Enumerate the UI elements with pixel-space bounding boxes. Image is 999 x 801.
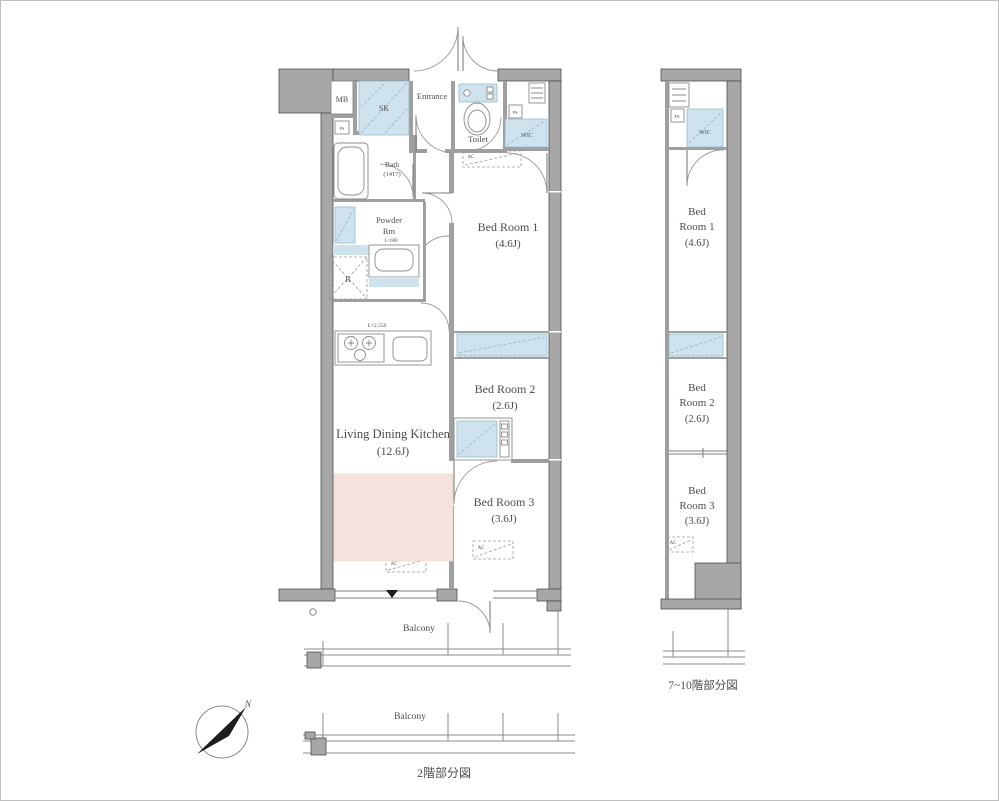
room-label-bed3-line1: Bed [688,485,706,497]
window-strip-bed2 [457,334,547,356]
room-label-ldk-size: (12.6J) [377,446,409,458]
room-label-ldk: Living Dining Kitchen [336,427,451,441]
entrance-door-icon [414,27,498,71]
ps-label: PS [674,114,680,119]
bottom-balcony-railing [303,713,575,755]
floor-plan-canvas: PS PS [0,0,999,801]
refrigerator-label: R [345,275,351,284]
bottom-plan-caption: 2階部分図 [417,765,471,780]
room-label-bed3-line2: Room 3 [679,500,715,512]
room-label-bed1-line1: Bed [688,206,706,218]
kitchen-length-label: L=2,550 [368,323,387,329]
room-label-bed1-size: (4.6J) [495,238,521,250]
second-floor-balcony-plan: Balcony 2階部分図 [303,712,575,780]
room-label-bed3-size: (3.6J) [685,516,710,527]
room-label-toilet: Toilet [468,134,488,144]
pipe-space-box: PS [335,121,349,134]
room-label-bath: Bath [385,160,399,169]
room-label-bed2-line2: Room 2 [679,397,714,409]
upper-floors-partial-plan: PS WIC AC [661,69,745,692]
sub-plan-caption: 7~10階部分図 [668,678,737,692]
bathtub-icon [334,143,413,199]
room-label-bed3-size: (3.6J) [491,513,517,525]
room-label-wic: WIC [521,133,533,139]
north-arrow-icon [197,707,246,754]
room-label-sk: SK [379,104,389,113]
sub-window-strip [669,331,727,359]
room-label-powder-1: Powder [376,215,402,225]
north-label: N [244,699,252,709]
room-label-bed2-line1: Bed [688,382,706,394]
washer-space [333,207,369,255]
room-label-bed3: Bed Room 3 [474,495,535,509]
room-label-powder-2: Rm [383,226,396,236]
kitchen-sink [393,337,427,361]
room-label-bed1-line2: Room 1 [679,221,714,233]
ac-label: AC [478,546,485,551]
ps-label: PS [512,110,518,115]
ac-label: AC [391,562,398,567]
main-balcony-railing [304,611,571,668]
room-label-bed1: Bed Room 1 [478,220,539,234]
vanity-length-label: L=690 [384,239,398,244]
sub-ac-box: AC [667,537,693,552]
main-floor-plan: PS PS [279,27,571,668]
room-label-balcony-2f: Balcony [394,712,426,722]
room-label-mb: MB [336,95,348,104]
drain-icon [310,609,316,615]
room-label-balcony: Balcony [403,624,435,634]
room-label-wic: WIC [699,130,711,136]
sub-balcony-railing [663,609,745,664]
washer-dryer-icon [454,418,512,460]
section-marker-icon [386,590,398,598]
room-label-bath-size: (1417) [383,171,400,178]
floor-plan-drawing: PS PS [1,1,998,800]
sub-wic-closet: PS WIC [669,83,727,186]
room-label-bed2: Bed Room 2 [475,382,536,396]
ldk-rug [334,474,453,561]
room-label-bed1-size: (4.6J) [685,238,710,249]
compass-icon: N [196,699,252,758]
vanity-sink-icon [369,245,419,287]
room-label-entrance: Entrance [417,91,447,101]
room-label-bed2-size: (2.6J) [492,400,518,412]
ac-box-bed3: AC [473,541,513,559]
kitchen-counter-icon [335,331,431,365]
room-label-bed2-size: (2.6J) [685,414,710,425]
ac-label: AC [468,155,475,160]
hall-door-icons [416,115,454,331]
ac-label: AC [670,541,677,546]
ps-label: PS [339,126,345,131]
sub-room-divider [669,448,727,458]
